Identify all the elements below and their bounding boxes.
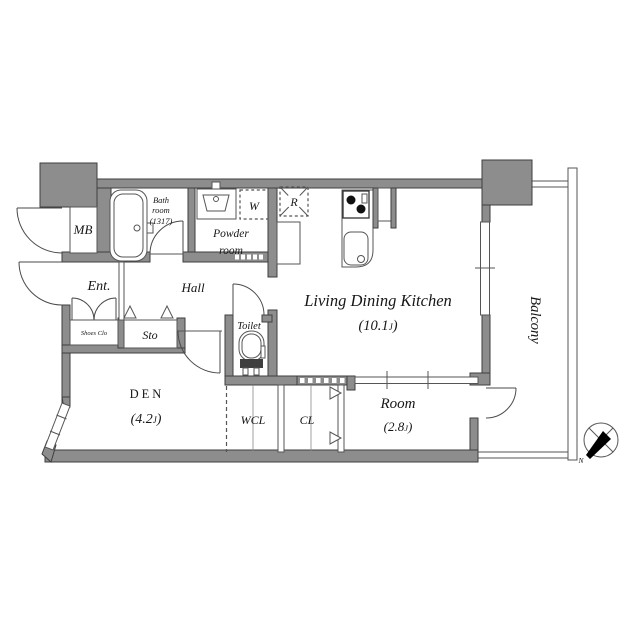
bath-room-label-line2: room: [152, 205, 170, 215]
den-label: DEN: [130, 387, 165, 401]
ent-label: Ent.: [87, 279, 111, 294]
ldk-label: Living Dining Kitchen: [303, 291, 452, 310]
den-size-label: (4.2J): [131, 412, 162, 427]
floor-plan-drawing: N MB Bath room (1317) Powder room W R En…: [0, 0, 640, 640]
mb-label: MB: [73, 222, 93, 237]
shoes-closet-label: Shoes Clo: [81, 330, 108, 337]
ent-hall-divider: [119, 262, 124, 320]
stove-icon: [343, 191, 369, 218]
room-size-label: (2.8J): [384, 419, 413, 434]
kitchen-counter: [342, 190, 373, 267]
wcl-label: WCL: [241, 413, 266, 427]
bath-room-label-line3: (1317): [150, 216, 173, 226]
room-label: Room: [380, 396, 416, 412]
cl-label: CL: [300, 413, 315, 427]
cl-room-divider: [338, 385, 344, 452]
room-sliding-door: [355, 377, 478, 384]
fridge-label: R: [289, 195, 298, 209]
bathtub-icon: [110, 190, 153, 261]
floor-plan: N MB Bath room (1317) Powder room W R En…: [0, 0, 640, 640]
powder-room-label-line2: room: [219, 245, 243, 257]
wcl-cl-divider: [278, 385, 284, 452]
washer-label: W: [249, 199, 260, 213]
powder-room-label-line1: Powder: [212, 228, 249, 240]
bath-room-label-line1: Bath: [153, 195, 169, 205]
toilet-label: Toilet: [237, 321, 262, 332]
sink-icon: [344, 232, 368, 265]
compass-north-label: N: [577, 456, 584, 465]
sto-label: Sto: [142, 328, 157, 342]
ldk-cabinet: [277, 222, 300, 264]
hall-label: Hall: [180, 280, 205, 295]
balcony-label: Balcony: [527, 296, 543, 344]
ldk-size-label: (10.1J): [358, 318, 397, 334]
